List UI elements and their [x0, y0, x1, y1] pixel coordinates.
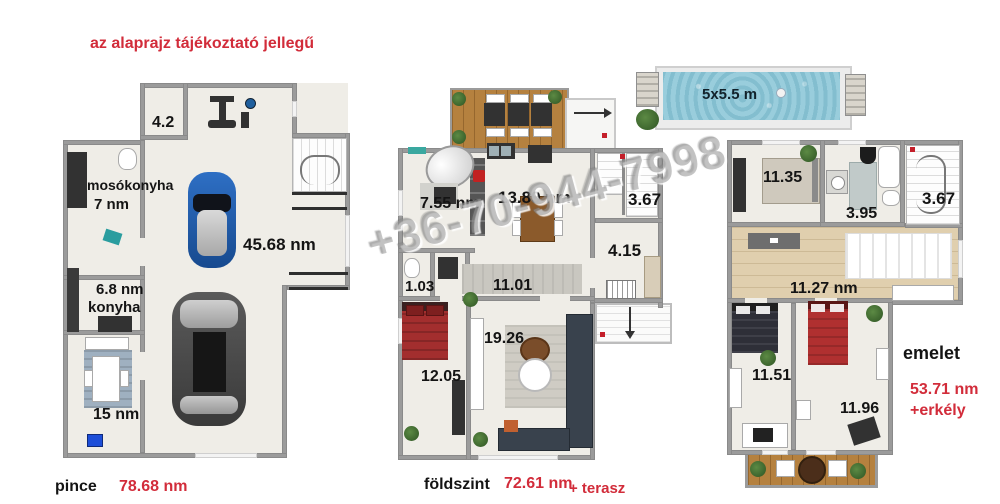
kitchen-stove [528, 145, 552, 163]
terasz-chair2 [510, 94, 529, 103]
foldszint-window-left1 [398, 190, 403, 216]
pool-lounger-right [845, 74, 866, 116]
emelet-wall-bath-bottom [820, 222, 905, 227]
boiler-pipe-icon [219, 96, 226, 122]
pince-wall-wing-top [63, 140, 145, 145]
boiler-base-icon [208, 120, 236, 128]
bath-washer-door [831, 176, 845, 190]
hobby-chair-left [84, 370, 93, 387]
pince-door-gap-top [292, 101, 297, 117]
foldszint-stairs-rail [622, 153, 625, 215]
terasz-chair5 [510, 128, 529, 137]
erkely-plant-right [850, 463, 866, 479]
toilet-icon-pince [118, 148, 137, 170]
pince-garage-door-rail [289, 272, 348, 290]
entry-arrow-head [604, 108, 612, 118]
entry-red-dot [602, 133, 607, 138]
pince-garage-door-bottom-gap [195, 453, 257, 458]
terasz-chair4 [486, 128, 505, 137]
pince-title: pince [55, 479, 97, 495]
erkely-chair-left [776, 460, 795, 477]
room-label-garage: 45.68 nm [243, 236, 316, 253]
room-label-bath: 3.95 [846, 206, 877, 222]
dining-chair-left2 [512, 220, 521, 236]
pince-wing-door-gap1 [140, 238, 145, 266]
terasz-table3 [531, 103, 552, 126]
erkely-chair-right [828, 460, 847, 477]
bed-1196 [808, 301, 848, 365]
living-console [470, 318, 484, 410]
floorplan-sheet: az alaprajz tájékoztató jellegű [0, 0, 1000, 504]
pince-garage-door-right-gap [345, 215, 350, 267]
washer-stack [67, 152, 87, 208]
kitchen-sink2 [501, 146, 511, 156]
steps-red-dot [600, 332, 605, 337]
kitchen-sink1 [489, 146, 499, 156]
emelet-wall-1135-right [820, 140, 825, 227]
steps-arrow-line [629, 307, 631, 333]
wc-washer [438, 257, 458, 279]
plant-1135 [800, 145, 817, 162]
bath-sink [882, 190, 900, 206]
room-label-stairs-f: 3.67 [628, 191, 661, 208]
ibeam-icon [241, 112, 249, 128]
pool-size-label: 5x5.5 m [702, 87, 757, 102]
shower-glass [849, 162, 877, 210]
kitchenette-cabinet [67, 268, 79, 332]
pince-room42-wall-bottom [140, 135, 188, 140]
laptop-1151 [753, 428, 773, 442]
desk-1151 [742, 423, 788, 448]
pool-lounger-left [636, 72, 659, 107]
foldszint-door-rightcol [590, 258, 595, 288]
erkely-door1 [762, 450, 788, 455]
emelet-stairs-dot [910, 147, 915, 152]
room-label-kitchen: 13.89 nm [498, 189, 571, 206]
dark-car [172, 292, 246, 426]
room-label-storage: 4.2 [152, 115, 174, 131]
emelet-window-right [958, 240, 963, 278]
plant-1151 [760, 350, 776, 366]
entry-porch [565, 98, 616, 152]
dark-car-roof [193, 332, 226, 392]
sofa-vertical [566, 314, 593, 448]
emelet-window-top1 [762, 140, 800, 145]
emelet-title: emelet [903, 344, 960, 362]
bed-1205-pillow1 [406, 305, 424, 316]
dark-car-hood [180, 300, 238, 328]
foldszint-door-bedroom [440, 296, 462, 301]
erkely-plant-left [750, 461, 766, 477]
room-label-kitchen-name: konyha [88, 300, 141, 315]
bathtub-emelet [878, 146, 900, 188]
room-label-415: 4.15 [608, 242, 641, 259]
living-round-table [518, 358, 552, 392]
toilet-icon-foldszint [404, 258, 420, 278]
shoe-rack [606, 280, 636, 299]
red-appliance-icon [473, 170, 485, 182]
bath-washer [826, 170, 848, 194]
room-label-laundry: mosókonyha [87, 178, 173, 192]
bed-1205 [402, 302, 448, 360]
room-label-wc: 1.03 [405, 279, 434, 294]
closet-1151 [729, 368, 742, 408]
foldszint-patio-door [478, 455, 558, 460]
pool-ladder-icon [776, 88, 786, 98]
erkely-table [798, 456, 826, 484]
toilet-icon-emelet [860, 147, 876, 164]
room-label-755: 7.55 nm [420, 196, 480, 212]
foldszint-wall-stairs-bottom [595, 218, 663, 223]
pince-wall-right-lower [282, 285, 287, 458]
bed-1205-pillow2 [426, 305, 444, 316]
room-label-corridor-e: 11.27 nm [790, 281, 858, 297]
room-label-corridor-f: 11.01 [493, 278, 532, 294]
sensor-dot-icon [245, 98, 256, 109]
dining-chair-right2 [554, 220, 563, 236]
bed-1151-pillow1 [736, 306, 750, 314]
terasz-plant3 [452, 130, 466, 144]
hobby-closet [85, 337, 129, 350]
kitchenette-counter [98, 316, 132, 332]
bed-1151-pillow2 [756, 306, 770, 314]
living-plant-bottom [473, 432, 488, 447]
teal-shelf-icon [408, 147, 426, 154]
dark-car-trunk [180, 396, 238, 414]
pince-area: 78.68 nm [119, 479, 187, 495]
room-label-1205: 12.05 [421, 369, 461, 385]
room-label-1135: 11.35 [763, 170, 802, 186]
terasz-chair1 [486, 94, 505, 103]
emelet-suffix: +erkély [910, 403, 966, 419]
desk-1135 [733, 158, 746, 212]
foldszint-wall-755-bottom [398, 248, 475, 253]
erkely-door2 [806, 450, 836, 455]
plant-1196 [866, 305, 883, 322]
blue-item-icon [87, 434, 103, 447]
emelet-window-top2 [838, 140, 866, 145]
hall-sideboard [748, 233, 800, 249]
stairs-red-dot [620, 154, 625, 159]
blue-car-roof [197, 210, 227, 256]
emelet-wall-room-divider [791, 303, 796, 450]
pince-wing-door-gap2 [140, 352, 145, 380]
plant-1205 [404, 426, 419, 441]
pince-shelf-rail [292, 192, 347, 210]
hobby-chair-right [120, 370, 129, 387]
blue-car [188, 172, 236, 268]
bed-1196-pillow1 [811, 304, 825, 312]
terasz-table2 [508, 103, 529, 126]
terasz-table1 [484, 103, 505, 126]
foldszint-title: földszint [424, 477, 490, 493]
hall-cabinet [644, 256, 661, 298]
foldszint-door-living [540, 296, 570, 301]
emelet-area: 53.71 nm [910, 382, 978, 398]
orange-cushion [504, 420, 518, 432]
foldszint-area: 72.61 nm [504, 476, 572, 492]
wardrobe-1205 [452, 380, 465, 435]
hobby-table [92, 356, 120, 402]
disclaimer-text: az alaprajz tájékoztató jellegű [90, 36, 314, 52]
room-label-1196: 11.96 [840, 401, 879, 417]
terasz-chair6 [533, 128, 552, 137]
room-label-laundry-area: 7 nm [94, 197, 129, 212]
room-label-stairs-e: 3.67 [922, 190, 955, 207]
pool-plant [636, 109, 659, 130]
emelet-wall-bath-right [900, 140, 905, 227]
emelet-wall-1135-bottom [727, 222, 825, 227]
closet-1196 [876, 348, 889, 380]
nightstand-1196 [796, 400, 811, 420]
room-label-1151: 11.51 [752, 368, 791, 384]
room-label-hobby: 15 nm [93, 407, 139, 423]
hall-window-shelf [892, 285, 954, 301]
hall-wavy-rug [845, 233, 952, 279]
entry-arrow [574, 112, 604, 114]
pince-stairs-rail [300, 155, 340, 185]
pince-room42-wall-right [183, 83, 188, 140]
foldszint-stairs-flight1 [597, 153, 623, 195]
bed-1151 [732, 303, 778, 353]
steps-arrow-head [625, 331, 635, 339]
foldszint-suffix: + terasz [569, 481, 625, 496]
bed-1196-pillow2 [830, 304, 844, 312]
pince-wall-top [140, 83, 297, 88]
sideboard-handle [770, 238, 778, 243]
room-label-kitchen-area: 6.8 nm [96, 282, 144, 297]
living-plant-top [463, 292, 478, 307]
terasz-plant1 [452, 92, 466, 106]
terasz-plant2 [548, 90, 562, 104]
bed-1135-headboard [812, 158, 818, 202]
room-label-1926: 19.26 [484, 331, 524, 347]
